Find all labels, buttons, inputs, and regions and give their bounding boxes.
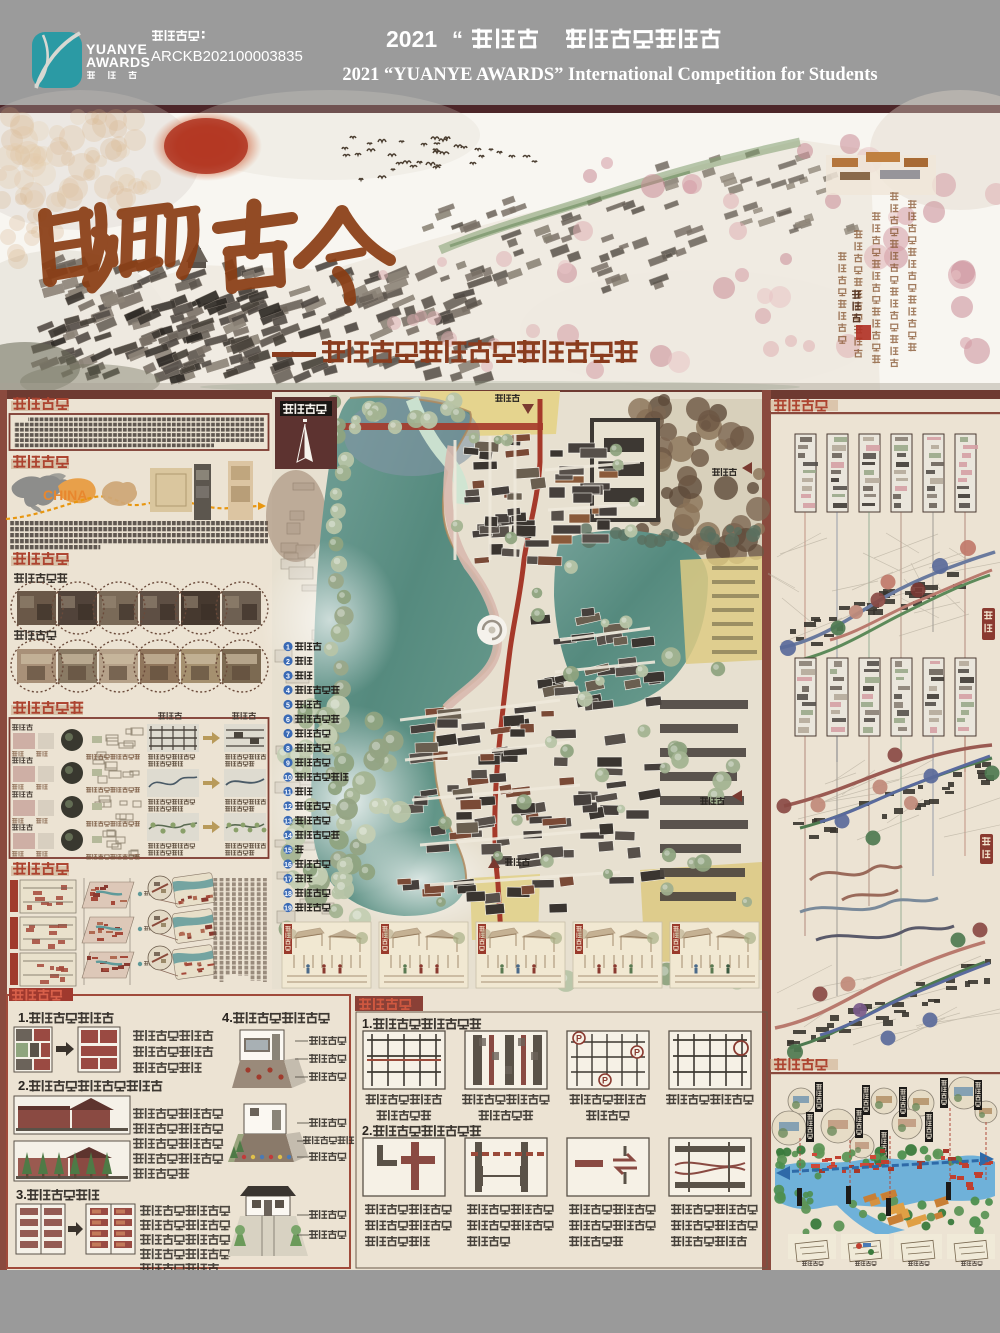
svg-text:14: 14 — [284, 833, 292, 840]
svg-text:5: 5 — [286, 703, 290, 710]
svg-text:“: “ — [452, 27, 463, 52]
svg-text:2021 “YUANYE AWARDS” Internati: 2021 “YUANYE AWARDS” International Compe… — [342, 65, 877, 85]
svg-text:2.: 2. — [362, 1124, 372, 1138]
svg-text:10: 10 — [284, 775, 292, 782]
svg-text:1.: 1. — [362, 1017, 372, 1031]
svg-text:1: 1 — [286, 645, 290, 652]
svg-text:7: 7 — [286, 732, 290, 739]
svg-text:P: P — [576, 1034, 582, 1044]
svg-text:2: 2 — [286, 659, 290, 666]
svg-text:13: 13 — [284, 819, 292, 826]
svg-text:6: 6 — [286, 717, 290, 724]
svg-text:18: 18 — [284, 891, 292, 898]
svg-text:16: 16 — [284, 862, 292, 869]
svg-text:19: 19 — [284, 906, 292, 913]
svg-text:2.: 2. — [18, 1078, 29, 1093]
svg-text:4: 4 — [286, 688, 290, 695]
svg-text:CHINA: CHINA — [43, 487, 87, 503]
svg-text:8: 8 — [286, 746, 290, 753]
svg-text:P: P — [634, 1048, 640, 1058]
svg-text:9: 9 — [286, 761, 290, 768]
svg-text:1.: 1. — [18, 1010, 29, 1025]
svg-text:15: 15 — [284, 848, 292, 855]
svg-text:4.: 4. — [222, 1010, 233, 1025]
svg-text:3: 3 — [286, 674, 290, 681]
svg-text:3.: 3. — [16, 1187, 27, 1202]
svg-text:2021: 2021 — [386, 26, 437, 52]
svg-text:12: 12 — [284, 804, 292, 811]
svg-text:17: 17 — [284, 877, 292, 884]
svg-text:ARCKB202100003835: ARCKB202100003835 — [151, 48, 303, 65]
svg-text:AWARDS: AWARDS — [86, 54, 150, 70]
svg-text:11: 11 — [284, 790, 292, 797]
svg-text:P: P — [602, 1076, 608, 1086]
